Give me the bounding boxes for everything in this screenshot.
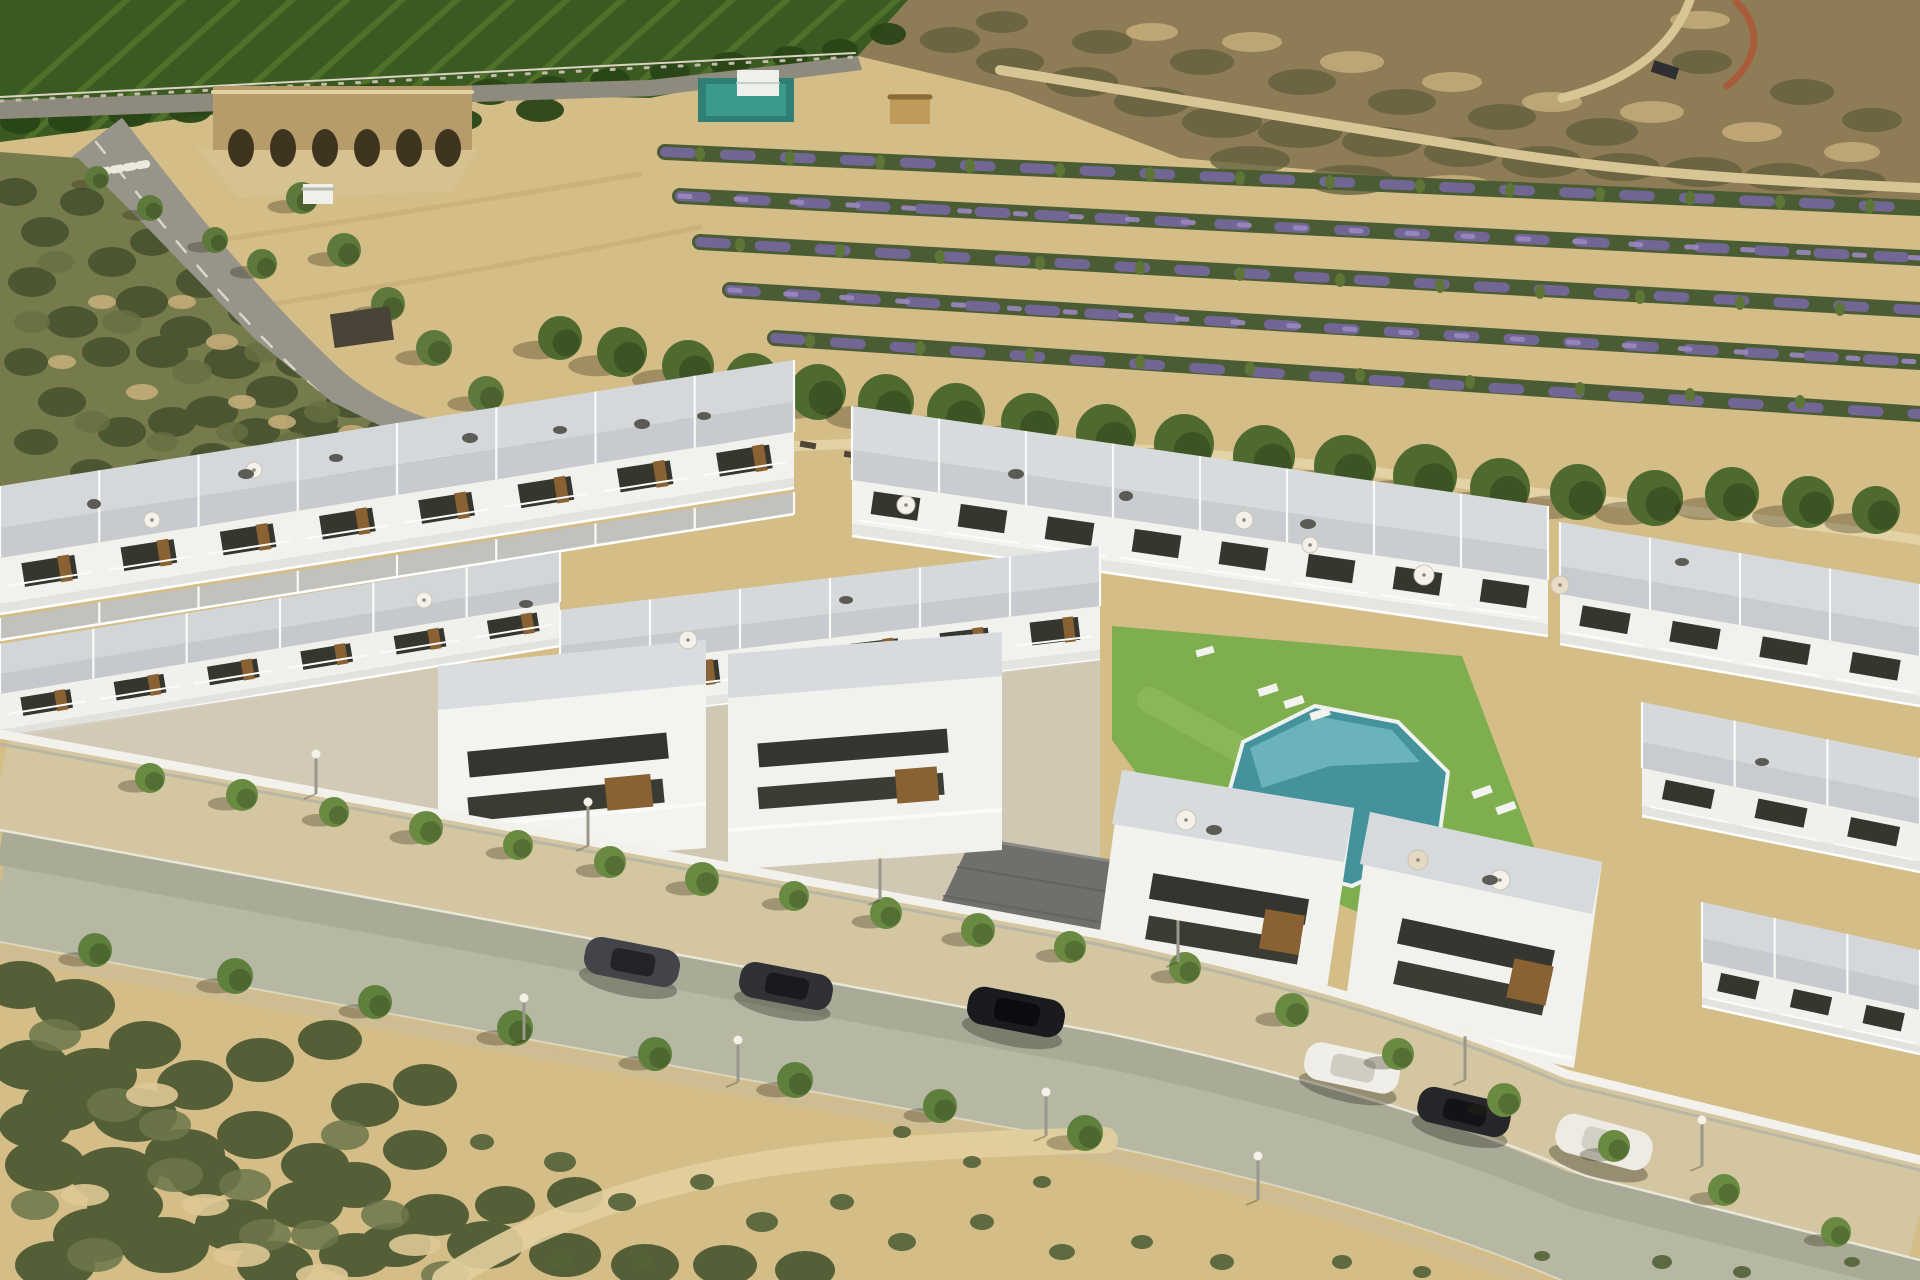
parasol [416, 592, 432, 608]
parasol [144, 512, 160, 528]
parasol [1414, 565, 1434, 585]
bridge-arch [354, 129, 380, 167]
parasol [1176, 810, 1196, 830]
parasol [1408, 850, 1428, 870]
bridge-arch [435, 129, 461, 167]
front-house-wood [895, 766, 940, 803]
scene-svg [0, 0, 1920, 1280]
right-house-2-wood [1506, 958, 1553, 1005]
right-house-wood [1259, 909, 1305, 955]
parasol [1235, 511, 1253, 529]
bridge-arch [312, 129, 338, 167]
bridge-arch [228, 129, 254, 167]
parasol [1302, 537, 1318, 553]
park-hut [303, 184, 333, 204]
bridge-arch [396, 129, 422, 167]
bridge-arch [270, 129, 296, 167]
parasol [679, 631, 697, 649]
parasol [897, 496, 915, 514]
aerial-photo [0, 0, 1920, 1280]
parasol [1551, 576, 1569, 594]
